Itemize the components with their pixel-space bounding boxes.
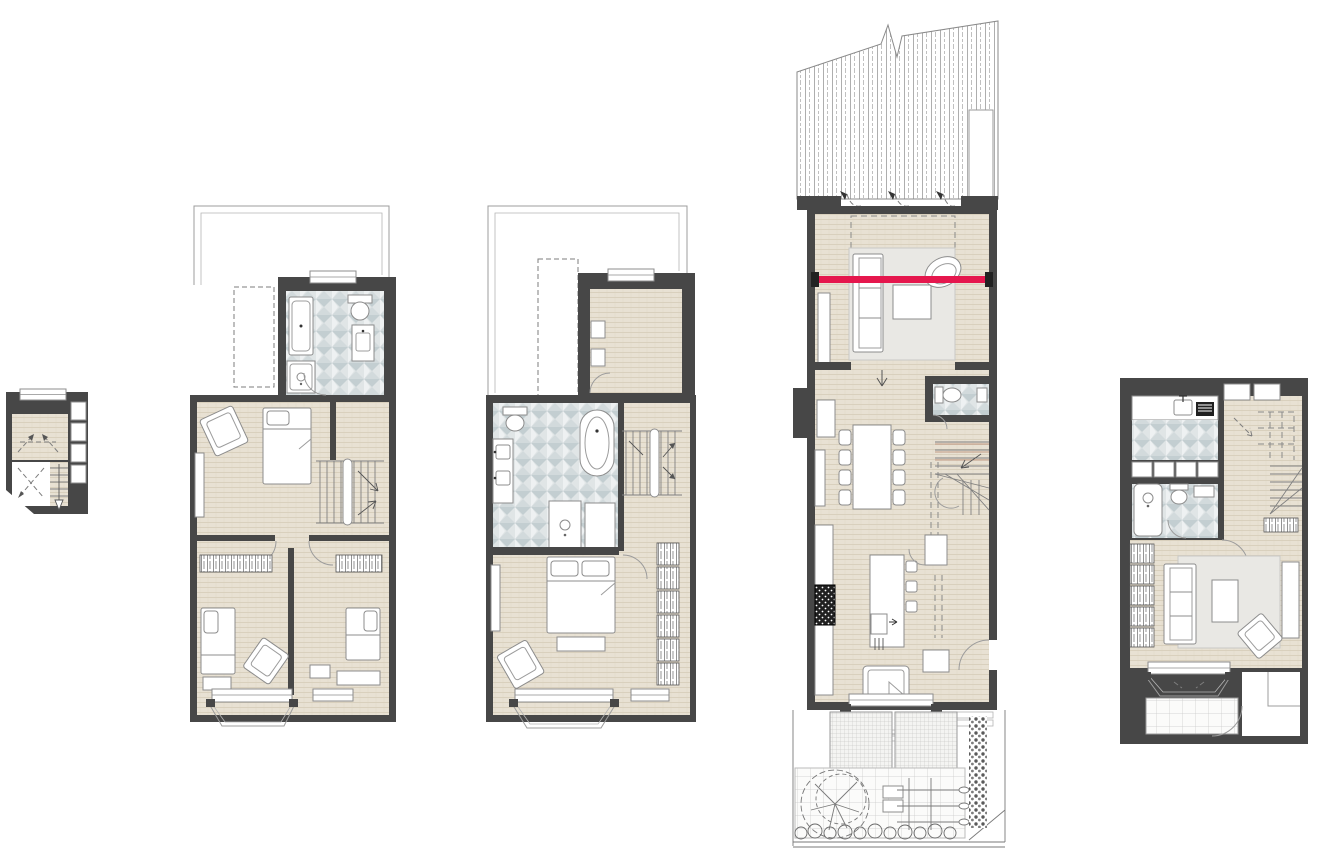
double-bed (547, 557, 615, 633)
radiator (815, 450, 825, 506)
garden (793, 710, 1005, 847)
hedge (969, 716, 987, 828)
coffee-table-2 (1212, 580, 1238, 622)
plan-loft (4, 388, 100, 524)
patio-grid-1 (830, 712, 892, 768)
bathtub (289, 297, 313, 355)
media-unit (1282, 562, 1299, 638)
loft-window (20, 389, 66, 400)
vanity-basin (352, 325, 374, 361)
skylight-dashed (234, 287, 274, 387)
plan-ground-floor (785, 10, 1020, 850)
sofa-2 (1164, 564, 1196, 644)
shower (287, 361, 315, 393)
stair-handrail-2 (650, 429, 659, 497)
foot-bench (557, 637, 605, 651)
shelf (195, 453, 204, 517)
window (313, 689, 353, 701)
lightwell (1146, 698, 1238, 734)
kitchen-island (870, 555, 904, 650)
sofa (853, 254, 883, 352)
roof-terrace-outline (194, 206, 389, 285)
cupboard (585, 503, 615, 549)
patio-grid-2 (895, 712, 957, 768)
shelf-niche (818, 293, 830, 367)
utility-tiles (1132, 420, 1218, 460)
nightstand-2 (310, 665, 330, 678)
dark-appliance (1196, 402, 1214, 416)
single-bed (263, 408, 311, 484)
basin-2 (1194, 486, 1214, 497)
plan-second-floor (188, 203, 400, 731)
bathroom-main (493, 403, 618, 551)
roof-clear-strip (969, 110, 993, 199)
shower-room (1132, 484, 1218, 538)
built-in-wardrobes-2 (336, 555, 382, 572)
freestanding-bath (580, 410, 614, 476)
range-cooker (815, 585, 835, 625)
larder (925, 535, 947, 565)
stair-handrail (343, 459, 352, 525)
desk (591, 321, 605, 338)
entrance-opening (989, 640, 997, 670)
window-2 (631, 689, 669, 701)
coffee-table (893, 285, 931, 319)
loft-room-floor (12, 414, 68, 460)
glazed-roof-extension (797, 21, 998, 199)
floor-plan-sheet (0, 0, 1325, 850)
desk-chair (591, 349, 605, 366)
chimney-protrusion (793, 388, 815, 438)
skylight-dashed-2 (538, 259, 578, 397)
plan-first-floor (483, 203, 705, 735)
loft-eaves-void (12, 462, 50, 506)
dining-table (853, 425, 891, 509)
cabinet (923, 650, 949, 672)
nightstand (203, 677, 231, 690)
cupboard-2 (1224, 384, 1250, 400)
shelf-2 (491, 565, 500, 631)
chest (337, 671, 380, 685)
toilet-3 (1170, 484, 1188, 504)
door-mat (1264, 518, 1298, 532)
built-in-wardrobes (200, 555, 272, 572)
cupboard-3 (1254, 384, 1280, 400)
wc (925, 376, 997, 429)
flagstone-area (795, 768, 965, 838)
bar-stools (906, 561, 917, 612)
sideboard (817, 400, 835, 437)
wc-basin (977, 388, 987, 402)
shower-2 (549, 501, 581, 549)
loft-stair (50, 462, 68, 510)
plan-lower-ground-floor (1118, 376, 1314, 770)
double-vanity (493, 439, 513, 503)
bookshelf-run (1130, 544, 1154, 647)
court-floor (1242, 672, 1300, 736)
shower-tray (1134, 484, 1162, 536)
